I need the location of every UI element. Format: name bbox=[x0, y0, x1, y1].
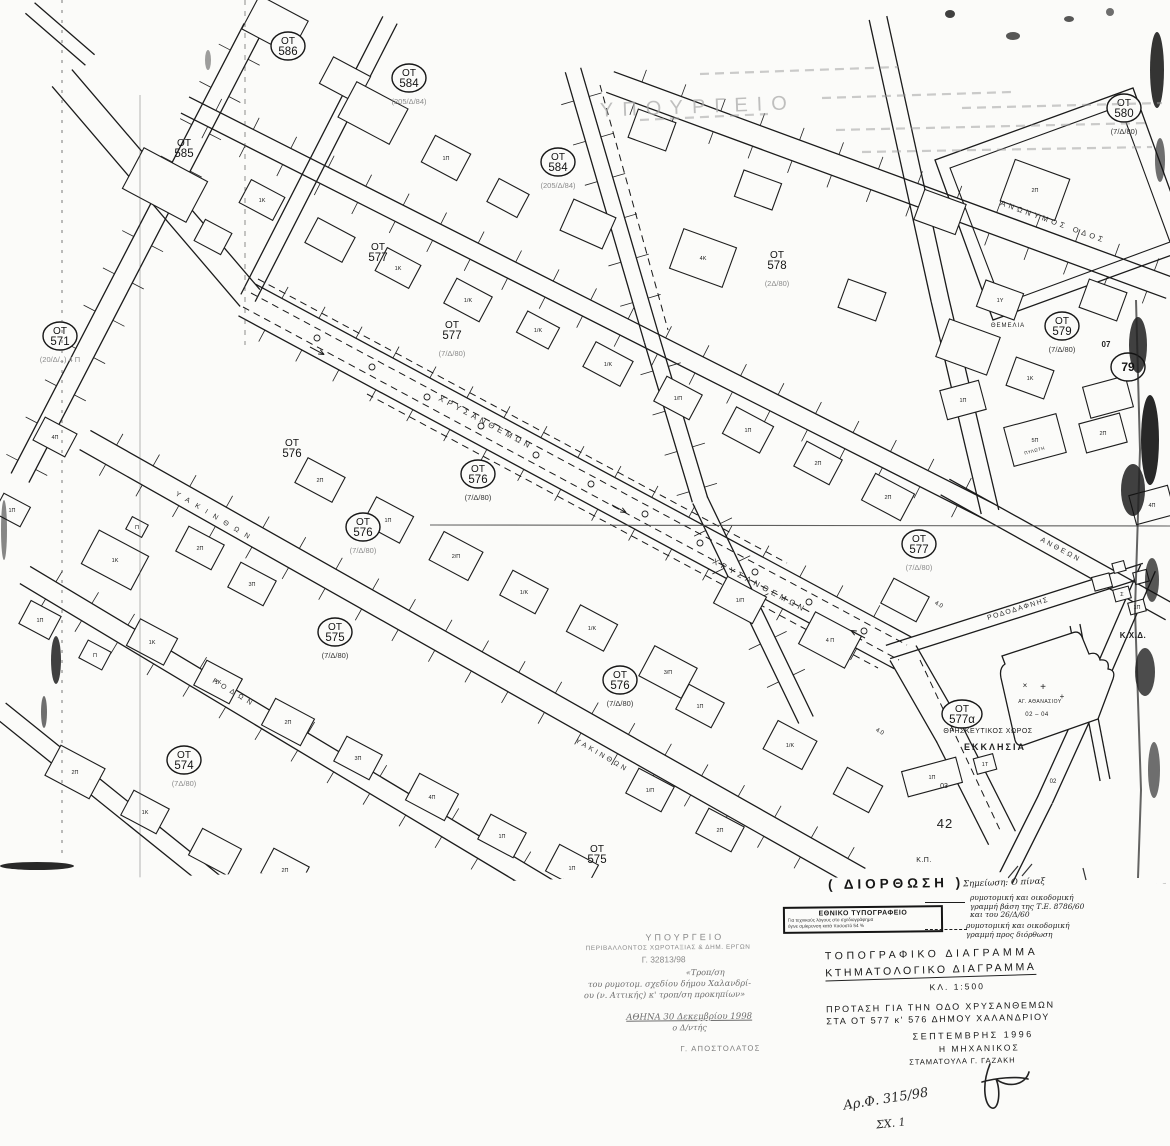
building bbox=[833, 767, 882, 812]
svg-text:1Π: 1Π bbox=[498, 834, 505, 840]
building: 1Κ bbox=[121, 790, 169, 834]
svg-text:586: 586 bbox=[278, 46, 297, 58]
block-label-575: ΟΤ575(7/Δ/80) bbox=[318, 618, 352, 660]
ministry-line: ΠΕΡΙΒΑΛΛΟΝΤΟΣ ΧΩΡΟΤΑΞΙΑΣ & ΔΗΜ. ΕΡΓΩΝ bbox=[586, 943, 840, 952]
svg-text:(7Δ/80): (7Δ/80) bbox=[172, 779, 197, 788]
proposal-line: ΣΤΑ ΟΤ 577 κ' 576 ΔΗΜΟΥ ΧΑΛΑΝΔΡΙΟΥ bbox=[826, 1012, 1055, 1027]
legend-text: και του 26/Δ/60 bbox=[970, 911, 1084, 920]
building: 4Κ bbox=[670, 229, 737, 288]
ministry-stamp: ΥΠΟΥΡΓΕΙΟ ΠΕΡΙΒΑΛΛΟΝΤΟΣ ΧΩΡΟΤΑΞΙΑΣ & ΔΗΜ… bbox=[579, 931, 840, 1054]
svg-text:(7/Δ/80): (7/Δ/80) bbox=[350, 546, 377, 555]
svg-text:03: 03 bbox=[940, 783, 948, 790]
svg-text:4.0: 4.0 bbox=[933, 601, 944, 611]
legend-dashed-line bbox=[925, 929, 967, 930]
legend-text: γραμμή προς διόρθωση bbox=[966, 931, 1070, 940]
svg-text:1Κ: 1Κ bbox=[395, 266, 402, 272]
svg-text:+: + bbox=[1040, 682, 1046, 693]
svg-text:2/Π: 2/Π bbox=[452, 554, 461, 560]
title-date: ΣΕΠΤΕΜΒΡΗΣ 1996 bbox=[913, 1029, 1056, 1042]
building: 1Π bbox=[1128, 599, 1147, 615]
svg-text:577: 577 bbox=[368, 252, 387, 264]
building: 1/Κ bbox=[516, 311, 559, 349]
svg-text:1Κ: 1Κ bbox=[149, 640, 156, 646]
svg-text:1Π: 1Π bbox=[8, 508, 15, 514]
svg-text:42: 42 bbox=[937, 816, 953, 831]
svg-text:2Π: 2Π bbox=[716, 828, 723, 834]
svg-text:ΘΕΜΕΛΙΑ: ΘΕΜΕΛΙΑ bbox=[991, 323, 1025, 329]
block-label-575: ΟΤ575 bbox=[587, 844, 606, 866]
building: 2Π bbox=[45, 745, 105, 798]
svg-text:580: 580 bbox=[1114, 108, 1133, 120]
svg-text:×: × bbox=[1023, 681, 1028, 690]
svg-text:1Π: 1Π bbox=[696, 704, 703, 710]
legend-solid-line bbox=[925, 902, 965, 903]
svg-text:578: 578 bbox=[767, 260, 786, 272]
svg-text:576: 576 bbox=[468, 474, 487, 486]
building: 1/Π bbox=[626, 768, 674, 812]
svg-text:574: 574 bbox=[174, 760, 194, 772]
block-label-577α: ΟΤ577α bbox=[942, 700, 982, 728]
svg-text:1Κ: 1Κ bbox=[1027, 376, 1034, 382]
building: 1Π bbox=[940, 380, 986, 419]
building bbox=[189, 828, 242, 875]
building: 1Π bbox=[421, 135, 470, 180]
building bbox=[1079, 279, 1127, 321]
block-label-577: ΟΤ577(7/Δ/80) bbox=[439, 320, 466, 358]
svg-text:(7/Δ/80): (7/Δ/80) bbox=[465, 493, 492, 502]
building bbox=[122, 148, 207, 222]
svg-text:(7/Δ/80): (7/Δ/80) bbox=[1049, 345, 1076, 354]
building: 2Π bbox=[176, 526, 224, 570]
svg-text:2Π: 2Π bbox=[316, 478, 323, 484]
scanned-map-document: 1Π4Κ2Π1Κ1Υ5Π1Π2Π1Κ1Κ1/Κ1/Κ1/Κ1/Π1Π2Π2Π1Κ… bbox=[0, 0, 1170, 1146]
building bbox=[734, 170, 781, 210]
block-label-576: ΟΤ576(7/Δ/80) bbox=[346, 513, 380, 555]
svg-text:(7/Δ/80): (7/Δ/80) bbox=[322, 651, 349, 660]
director-name: Γ. ΑΠΟΣΤΟΛΑΤΟΣ bbox=[680, 1043, 840, 1053]
stamp-line: έγινε σμίκρυνση κατά ποσοστό 54 % bbox=[788, 922, 938, 930]
svg-text:585: 585 bbox=[174, 148, 193, 160]
building bbox=[305, 218, 355, 262]
svg-text:07: 07 bbox=[1102, 340, 1111, 349]
correction-note: ( ΔΙΟΡΘΩΣΗ ) bbox=[828, 875, 964, 892]
building: 1/Π bbox=[654, 376, 702, 420]
svg-text:575: 575 bbox=[587, 854, 606, 866]
svg-text:02: 02 bbox=[1050, 779, 1057, 785]
svg-text:576: 576 bbox=[282, 448, 301, 460]
svg-text:Κ.Π.: Κ.Π. bbox=[916, 857, 932, 864]
map-scale: ΚΛ. 1:500 bbox=[929, 980, 1054, 993]
block-label-574: ΟΤ574(7Δ/80) bbox=[167, 746, 201, 788]
building: 2Π bbox=[261, 848, 309, 892]
svg-text:1/Π: 1/Π bbox=[674, 396, 683, 402]
svg-text:1Π: 1Π bbox=[36, 618, 43, 624]
svg-text:4Π: 4Π bbox=[51, 435, 58, 441]
protocol-number: Γ. 32813/98 bbox=[642, 953, 840, 965]
svg-text:4 Π: 4 Π bbox=[826, 638, 835, 644]
building bbox=[1112, 561, 1126, 574]
block-label-584: ΟΤ584(205/Δ/84) bbox=[391, 64, 427, 106]
svg-text:577α: 577α bbox=[949, 714, 975, 726]
svg-text:1/Π: 1/Π bbox=[736, 598, 745, 604]
svg-text:(205/Δ/84): (205/Δ/84) bbox=[391, 97, 427, 106]
svg-text:ΧΡΥΣΑΝΘΕΜΩΝ: ΧΡΥΣΑΝΘΕΜΩΝ bbox=[437, 394, 535, 452]
building: 1Π bbox=[902, 757, 963, 797]
national-printing-stamp: ΕΘΝΙΚΟ ΤΥΠΟΓΡΑΦΕΙΟ Για τεχνικούς λόγους … bbox=[783, 905, 943, 934]
building: 1Υ bbox=[976, 280, 1023, 320]
svg-text:584: 584 bbox=[399, 78, 419, 90]
director-line: ο Δ/ντής bbox=[672, 1022, 840, 1032]
svg-text:ΕΚΚΛΗΣΙΑ: ΕΚΚΛΗΣΙΑ bbox=[964, 742, 1026, 752]
svg-text:Κ.Χ.Δ.: Κ.Χ.Δ. bbox=[1120, 631, 1147, 640]
svg-text:2Π: 2Π bbox=[884, 495, 891, 501]
building: 1Κ bbox=[126, 619, 177, 665]
svg-text:1/Κ: 1/Κ bbox=[604, 362, 613, 368]
building: 1/Κ bbox=[763, 721, 817, 770]
building: 5Π bbox=[1004, 414, 1067, 467]
svg-text:1Π: 1Π bbox=[928, 775, 935, 781]
building: 4 Π bbox=[799, 612, 862, 668]
legend-dashed-entry: ρυμοτομική και οικοδομική γραμμή προς δι… bbox=[966, 922, 1070, 939]
svg-text:1Κ: 1Κ bbox=[112, 558, 119, 564]
block-label-576: ΟΤ576(7/Δ/80) bbox=[603, 666, 637, 708]
building bbox=[881, 578, 929, 622]
building: Π bbox=[126, 517, 148, 538]
svg-text:1Π: 1Π bbox=[442, 156, 449, 162]
svg-text:2Π: 2Π bbox=[196, 546, 203, 552]
building: 2Π bbox=[262, 698, 315, 745]
svg-text:1Τ: 1Τ bbox=[982, 762, 989, 768]
svg-text:(205/Δ/84): (205/Δ/84) bbox=[540, 181, 576, 190]
block-label-579: ΟΤ579(7/Δ/80) bbox=[1045, 312, 1079, 354]
building: 1Π bbox=[478, 814, 526, 858]
building: 1Π bbox=[19, 601, 61, 640]
svg-text:1Κ: 1Κ bbox=[142, 810, 149, 816]
svg-text:577: 577 bbox=[442, 330, 461, 342]
svg-text:Π: Π bbox=[93, 653, 97, 659]
building: 4Π bbox=[33, 417, 77, 457]
block-label-578: ΟΤ578(2Δ/80) bbox=[765, 250, 790, 288]
svg-text:576: 576 bbox=[353, 527, 372, 539]
svg-text:(2Δ/80): (2Δ/80) bbox=[765, 279, 790, 288]
building: 1Π bbox=[722, 407, 773, 453]
svg-text:3/Π: 3/Π bbox=[664, 670, 673, 676]
svg-text:2Π: 2Π bbox=[281, 868, 288, 874]
map-layer: 1Π4Κ2Π1Κ1Υ5Π1Π2Π1Κ1Κ1/Κ1/Κ1/Κ1/Π1Π2Π2Π1Κ… bbox=[0, 0, 1170, 1007]
svg-text:2Π: 2Π bbox=[1099, 431, 1106, 437]
svg-text:2Π: 2Π bbox=[71, 770, 78, 776]
svg-text:2Π: 2Π bbox=[1031, 188, 1038, 194]
engineer-signature bbox=[962, 1056, 1042, 1126]
handwritten-note: «Τροπ/ση bbox=[686, 966, 840, 977]
svg-text:1Π: 1Π bbox=[744, 428, 751, 434]
block-label-576: ΟΤ576(7/Δ/80) bbox=[461, 460, 495, 502]
svg-text:ΑΓ. ΑΘΑΝΑΣΙΟΥ: ΑΓ. ΑΘΑΝΑΣΙΟΥ bbox=[1018, 699, 1062, 705]
svg-text:576: 576 bbox=[610, 680, 629, 692]
svg-text:1/Κ: 1/Κ bbox=[520, 590, 529, 596]
svg-text:02 – 04: 02 – 04 bbox=[1025, 712, 1049, 718]
svg-text:571: 571 bbox=[50, 336, 69, 348]
building: 1/Κ bbox=[566, 605, 617, 651]
svg-text:1/Π: 1/Π bbox=[646, 788, 655, 794]
svg-text:1/Κ: 1/Κ bbox=[534, 328, 543, 334]
block-label-577: ΟΤ577 bbox=[368, 242, 387, 264]
svg-text:575: 575 bbox=[325, 632, 344, 644]
building: 2Π bbox=[1079, 413, 1127, 453]
block-label-571: ΟΤ571(20/Δ/..) 4 Π bbox=[40, 322, 80, 364]
ministry-line: ΥΠΟΥΡΓΕΙΟ bbox=[645, 931, 839, 943]
svg-text:4.0: 4.0 bbox=[874, 728, 885, 738]
block-label-585: ΟΤ585 bbox=[174, 138, 193, 160]
svg-text:1Π: 1Π bbox=[568, 866, 575, 872]
block-label-584: ΟΤ584(205/Δ/84) bbox=[540, 148, 576, 190]
building bbox=[1083, 376, 1134, 418]
svg-text:(7/Δ/80): (7/Δ/80) bbox=[439, 349, 466, 358]
svg-text:3Π: 3Π bbox=[248, 582, 255, 588]
svg-text:584: 584 bbox=[548, 162, 568, 174]
svg-text:+: + bbox=[1060, 692, 1065, 701]
stamp-date: ΑΘΗΝΑ 30 Δεκεμβρίου 1998 bbox=[626, 1011, 840, 1023]
svg-text:Σ: Σ bbox=[1120, 592, 1124, 598]
svg-text:1/Κ: 1/Κ bbox=[786, 743, 795, 749]
svg-text:ΘΡΗΣΚΕΥΤΙΚΟΣ ΧΩΡΟΣ: ΘΡΗΣΚΕΥΤΙΚΟΣ ΧΩΡΟΣ bbox=[943, 728, 1032, 735]
block-label-586: ΟΤ586 bbox=[271, 32, 305, 60]
svg-text:1Π: 1Π bbox=[384, 518, 391, 524]
building bbox=[487, 179, 529, 218]
svg-text:4Π: 4Π bbox=[428, 795, 435, 801]
block-label-577: ΟΤ577(7/Δ/80) bbox=[902, 530, 936, 572]
handwritten-note: ου (ν. Αττικής) κ' τροπ/ση προκηπίων» bbox=[584, 988, 840, 1000]
building bbox=[838, 279, 886, 321]
building: 1Κ bbox=[239, 180, 285, 221]
svg-text:(7/Δ/80): (7/Δ/80) bbox=[1111, 127, 1138, 136]
svg-text:1Π: 1Π bbox=[959, 398, 966, 404]
svg-text:(7/Δ/80): (7/Δ/80) bbox=[906, 563, 933, 572]
svg-text:1Υ: 1Υ bbox=[997, 298, 1004, 304]
building: 1Κ bbox=[81, 530, 148, 590]
building: 4Π bbox=[406, 773, 459, 820]
svg-text:579: 579 bbox=[1052, 326, 1071, 338]
building: 2Π bbox=[696, 808, 744, 852]
title-block: ΤΟΠΟΓΡΑΦΙΚΟ ΔΙΑΓΡΑΜΜΑ ΚΤΗΜΑΤΟΛΟΓΙΚΟ ΔΙΑΓ… bbox=[825, 946, 1056, 1069]
building: 3Π bbox=[228, 562, 276, 606]
block-label-576: ΟΤ576 bbox=[282, 438, 301, 460]
svg-text:Π: Π bbox=[135, 525, 139, 531]
building: 2Π bbox=[295, 458, 345, 502]
building: 2Π bbox=[794, 441, 842, 485]
building: Π bbox=[79, 640, 111, 670]
building: 1/Κ bbox=[500, 570, 548, 614]
svg-text:1Κ: 1Κ bbox=[259, 198, 266, 204]
svg-text:4Κ: 4Κ bbox=[700, 256, 707, 262]
legend-solid-entry: ρυμοτομική και οικοδομική γραμμή βάση τη… bbox=[970, 894, 1084, 920]
svg-text:(7/Δ/80): (7/Δ/80) bbox=[607, 699, 634, 708]
svg-text:1/Κ: 1/Κ bbox=[464, 298, 473, 304]
map-subtitle: ΚΤΗΜΑΤΟΛΟΓΙΚΟ ΔΙΑΓΡΑΜΜΑ bbox=[825, 961, 1037, 982]
svg-text:2Π: 2Π bbox=[814, 461, 821, 467]
svg-text:4Π: 4Π bbox=[1148, 503, 1155, 509]
engineer-role: Η ΜΗΧΑΝΙΚΟΣ bbox=[939, 1042, 1056, 1054]
building: 1/Κ bbox=[444, 278, 492, 322]
svg-text:3Π: 3Π bbox=[354, 756, 361, 762]
building: 1/Κ bbox=[583, 342, 633, 386]
building bbox=[560, 199, 616, 249]
svg-text:(20/Δ/..) 4 Π: (20/Δ/..) 4 Π bbox=[40, 355, 80, 364]
svg-text:5Π: 5Π bbox=[1031, 438, 1038, 444]
svg-text:1/Κ: 1/Κ bbox=[588, 626, 597, 632]
building: 2/Π bbox=[429, 532, 483, 581]
svg-text:2Π: 2Π bbox=[284, 720, 291, 726]
building: 1Κ bbox=[1006, 357, 1054, 399]
building: 1Τ bbox=[973, 754, 996, 775]
svg-text:577: 577 bbox=[909, 544, 928, 556]
block-label-580: ΟΤ580(7/Δ/80) bbox=[1107, 94, 1141, 136]
